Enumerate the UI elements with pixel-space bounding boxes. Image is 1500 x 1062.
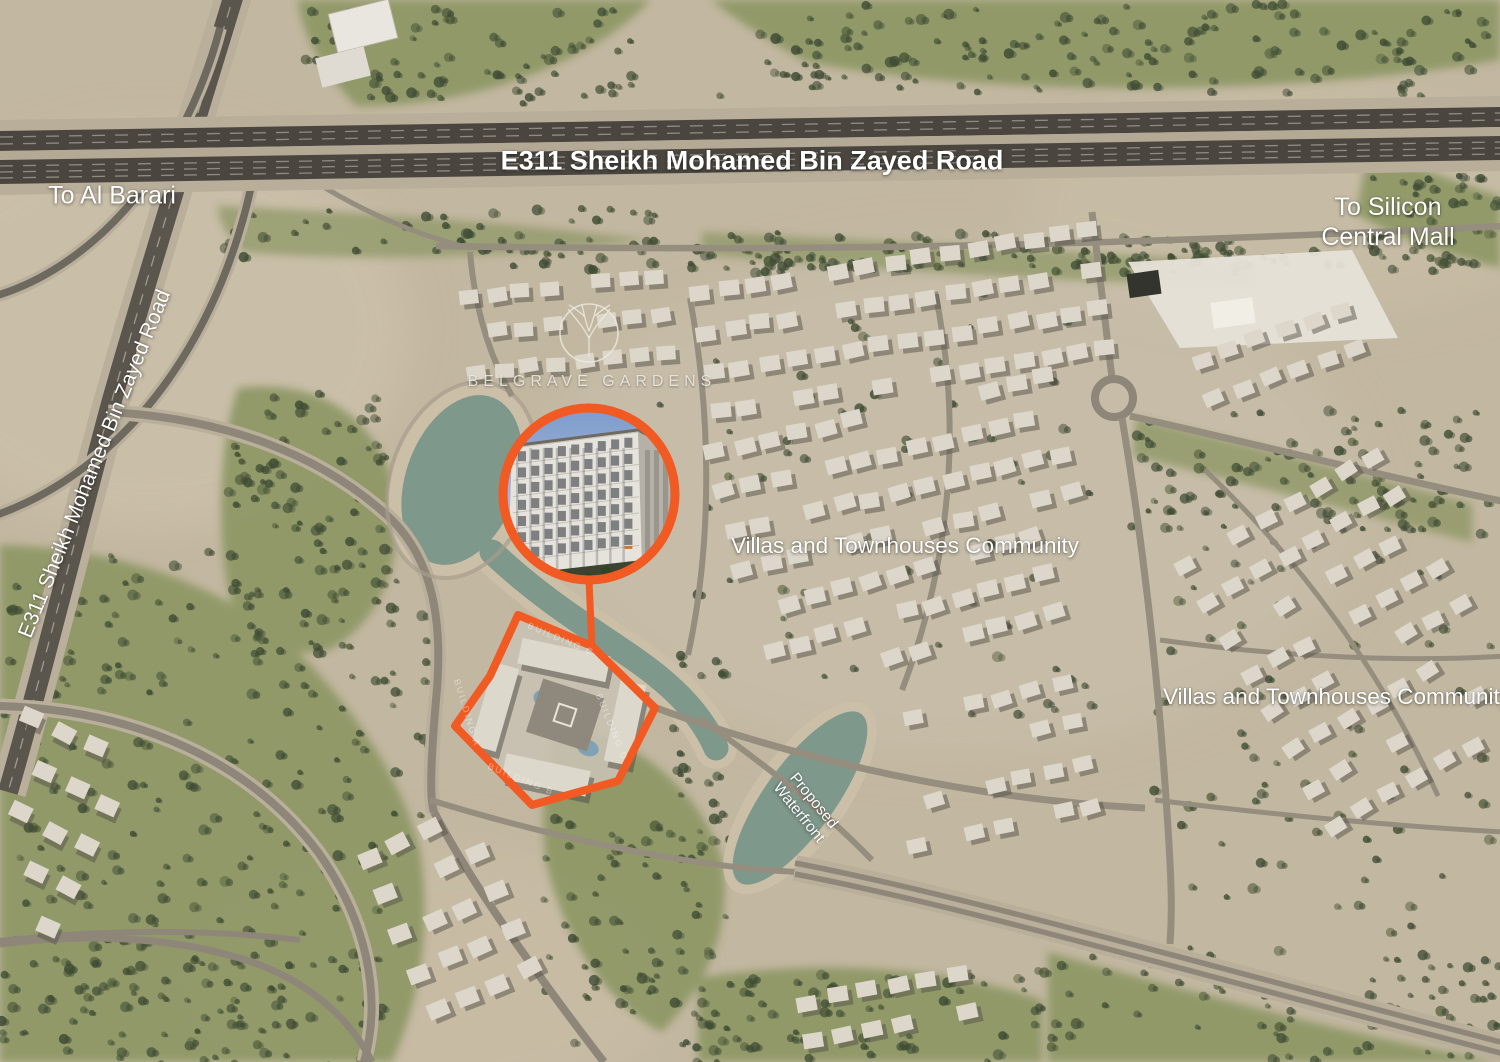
aerial-map: E311 Sheikh Mohamed Bin Zayed Road To Al… (0, 0, 1500, 1062)
community-label-1: Villas and Townhouses Community (731, 533, 1079, 559)
to-silicon-central-mall-label: To Silicon Central Mall (1321, 192, 1454, 252)
community-label-2: Villas and Townhouses Community (1163, 684, 1500, 710)
highway-label-top: E311 Sheikh Mohamed Bin Zayed Road (501, 146, 1004, 177)
to-al-barari-label: To Al Barari (48, 182, 176, 211)
to-silicon-line1: To Silicon (1335, 193, 1442, 221)
dark-roof-building (1126, 270, 1161, 298)
callout-connector (589, 580, 592, 648)
to-silicon-line2: Central Mall (1321, 223, 1454, 251)
logo-wordmark: BELGRAVE GARDENS (468, 373, 717, 391)
